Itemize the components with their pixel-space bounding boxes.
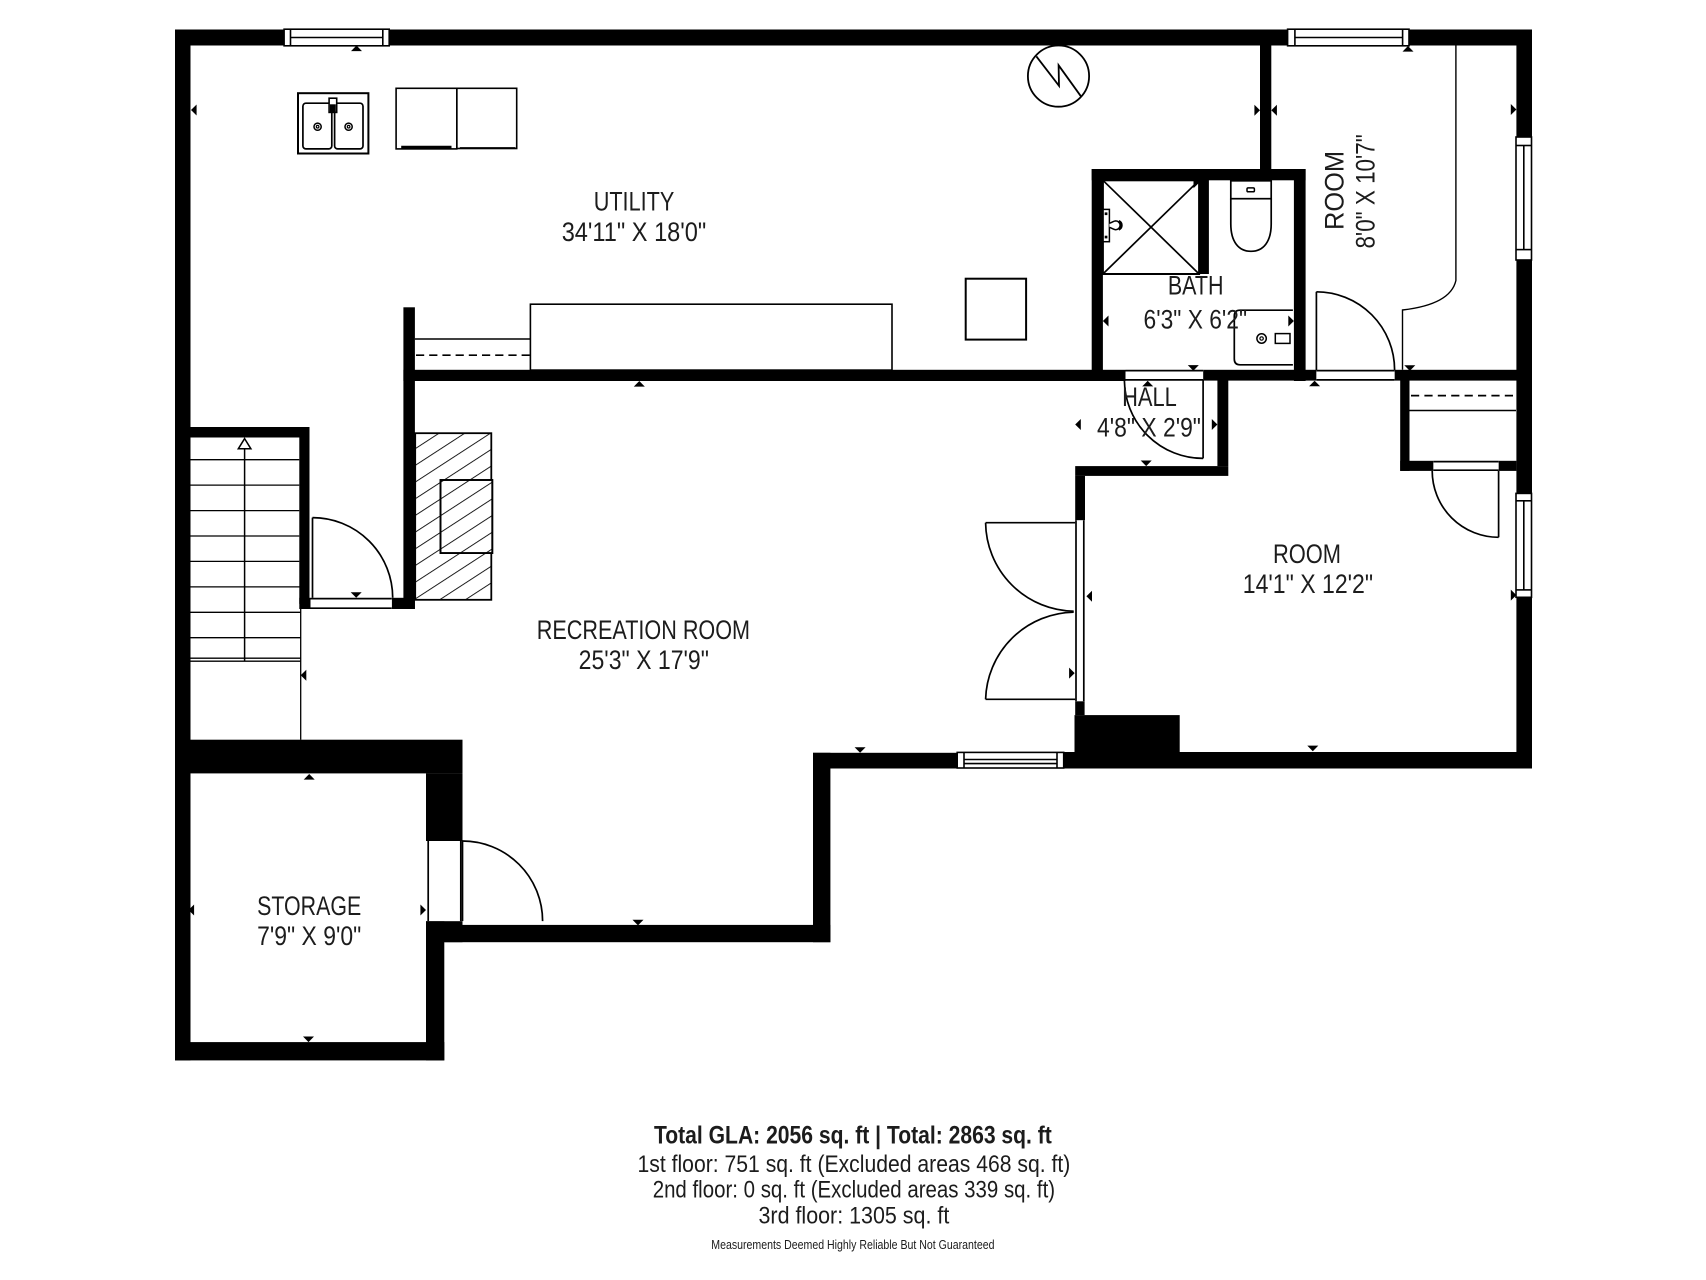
svg-text:UTILITY: UTILITY [594, 186, 675, 216]
svg-text:34'11" X 18'0": 34'11" X 18'0" [562, 217, 707, 247]
svg-text:Total GLA: 2056 sq. ft | Total: Total GLA: 2056 sq. ft | Total: 2863 sq.… [654, 1121, 1052, 1149]
svg-text:Measurements Deemed Highly Rel: Measurements Deemed Highly Reliable But … [711, 1238, 994, 1252]
svg-text:6'3" X 6'2": 6'3" X 6'2" [1144, 305, 1248, 335]
svg-text:RECREATION ROOM: RECREATION ROOM [537, 615, 750, 645]
svg-text:3rd floor: 1305 sq. ft: 3rd floor: 1305 sq. ft [759, 1202, 950, 1229]
svg-text:ROOM: ROOM [1273, 539, 1341, 569]
svg-text:ROOM: ROOM [1320, 151, 1350, 230]
svg-text:2nd floor: 0 sq. ft (Excluded: 2nd floor: 0 sq. ft (Excluded areas 339 … [653, 1177, 1055, 1204]
svg-text:HALL: HALL [1122, 382, 1177, 412]
svg-text:8'0" X 10'7": 8'0" X 10'7" [1351, 134, 1381, 248]
svg-text:STORAGE: STORAGE [257, 891, 361, 921]
svg-text:14'1" X 12'2": 14'1" X 12'2" [1243, 569, 1373, 599]
svg-text:BATH: BATH [1168, 271, 1224, 301]
svg-text:1st floor: 751 sq. ft (Exclude: 1st floor: 751 sq. ft (Excluded areas 46… [638, 1151, 1071, 1178]
svg-text:7'9" X 9'0": 7'9" X 9'0" [257, 921, 361, 951]
svg-text:25'3" X 17'9": 25'3" X 17'9" [579, 645, 709, 675]
svg-text:4'8" X 2'9": 4'8" X 2'9" [1097, 413, 1201, 443]
